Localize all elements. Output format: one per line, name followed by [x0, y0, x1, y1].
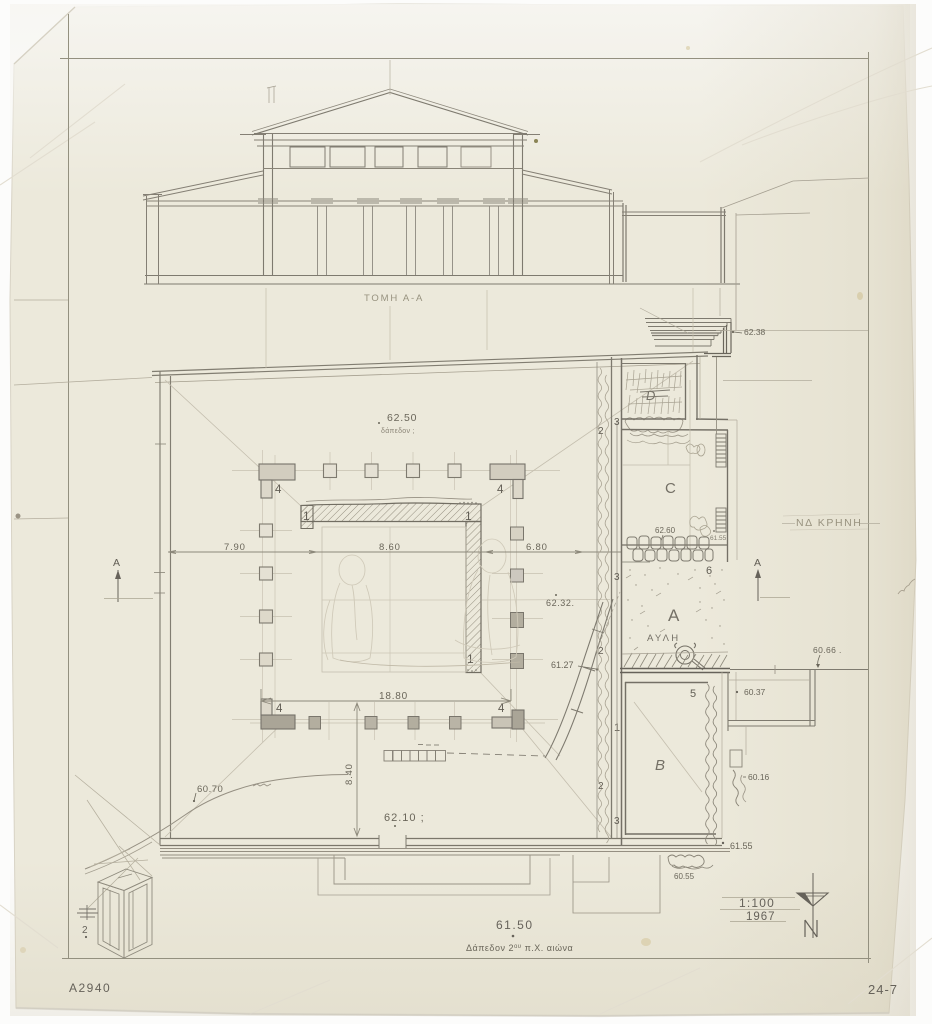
svg-text:2: 2: [82, 925, 88, 936]
